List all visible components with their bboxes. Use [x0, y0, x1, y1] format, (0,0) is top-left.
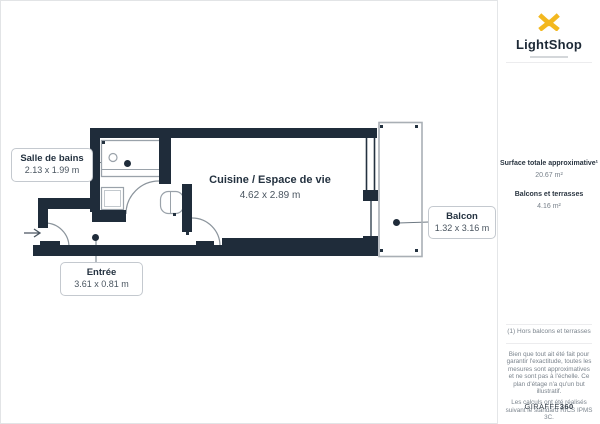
room-dimensions: 3.61 x 0.81 m [65, 279, 138, 290]
leader-dot-bathroom [124, 160, 131, 167]
balcony-surface-title: Balcons et terrasses [498, 191, 600, 198]
balcony-outline [379, 123, 422, 257]
floorplan: Salle de bains 2.13 x 1.99 m Entrée 3.61… [0, 0, 497, 424]
entrance-door-leaf [40, 241, 60, 246]
brand-name: LightShop [498, 37, 600, 52]
surface-footnote: (1) Hors balcons et terrasses [502, 328, 596, 335]
wall-bottom-step [222, 238, 378, 247]
disclaimer-paragraph: Bien que tout ait été fait pour garantir… [505, 351, 593, 395]
info-sidebar: LightShop Surface totale approximative¹ … [497, 0, 600, 424]
room-dimensions: 2.13 x 1.99 m [16, 165, 88, 176]
brand-logo: LightShop [498, 12, 600, 58]
lightshop-logo-icon [536, 12, 562, 31]
wall-top [90, 128, 377, 138]
room-dimensions: 4.62 x 2.89 m [190, 190, 350, 201]
bathroom-door-arc [126, 181, 159, 214]
room-name: Balcon [433, 210, 491, 223]
toilet [161, 192, 184, 214]
room-label-kitchen: Cuisine / Espace de vie 4.62 x 2.89 m [190, 174, 350, 201]
bathtub-faucet [109, 154, 117, 162]
entry-arrow-icon [24, 229, 40, 237]
room-dimensions: 1.32 x 3.16 m [433, 223, 491, 234]
disclaimer-text: Bien que tout ait été fait pour garantir… [505, 351, 593, 424]
wall-corner-right [363, 236, 378, 246]
surface-total-title: Surface totale approximative¹ [498, 160, 600, 167]
giraffe360-credit: GIRAFFE360 [498, 402, 600, 411]
wall-window-sill [363, 190, 378, 201]
sidebar-divider [506, 324, 592, 325]
room-name: Cuisine / Espace de vie [190, 174, 350, 186]
room-label-entrance: Entrée 3.61 x 0.81 m [60, 262, 143, 296]
room-name: Salle de bains [16, 152, 88, 165]
credit-suffix: 360 [560, 402, 574, 411]
sidebar-divider [506, 343, 592, 344]
room-label-balcony: Balcon 1.32 x 3.16 m [428, 206, 496, 239]
wall-bathroom-bottom [92, 210, 126, 222]
leader-dot-balcony [393, 219, 400, 226]
floorplan-page: Salle de bains 2.13 x 1.99 m Entrée 3.61… [0, 0, 600, 424]
brand-tagline [530, 56, 568, 58]
surface-summary: Surface totale approximative¹ 20.67 m² B… [498, 160, 600, 210]
wall-bathroom-right [159, 138, 171, 184]
credit-brand: GIRAFFE [524, 402, 559, 411]
leader-line-balcony [398, 222, 429, 223]
wall-left-stub [38, 198, 48, 228]
mainroom-door-leaf [196, 241, 214, 246]
balcony-surface-value: 4.16 m² [498, 203, 600, 210]
sidebar-divider [506, 62, 592, 63]
floorplan-linework [0, 0, 497, 424]
surface-total-value: 20.67 m² [498, 172, 600, 179]
room-name: Entrée [65, 266, 138, 279]
leader-dot-entrance [92, 234, 99, 241]
room-label-bathroom: Salle de bains 2.13 x 1.99 m [11, 148, 93, 182]
